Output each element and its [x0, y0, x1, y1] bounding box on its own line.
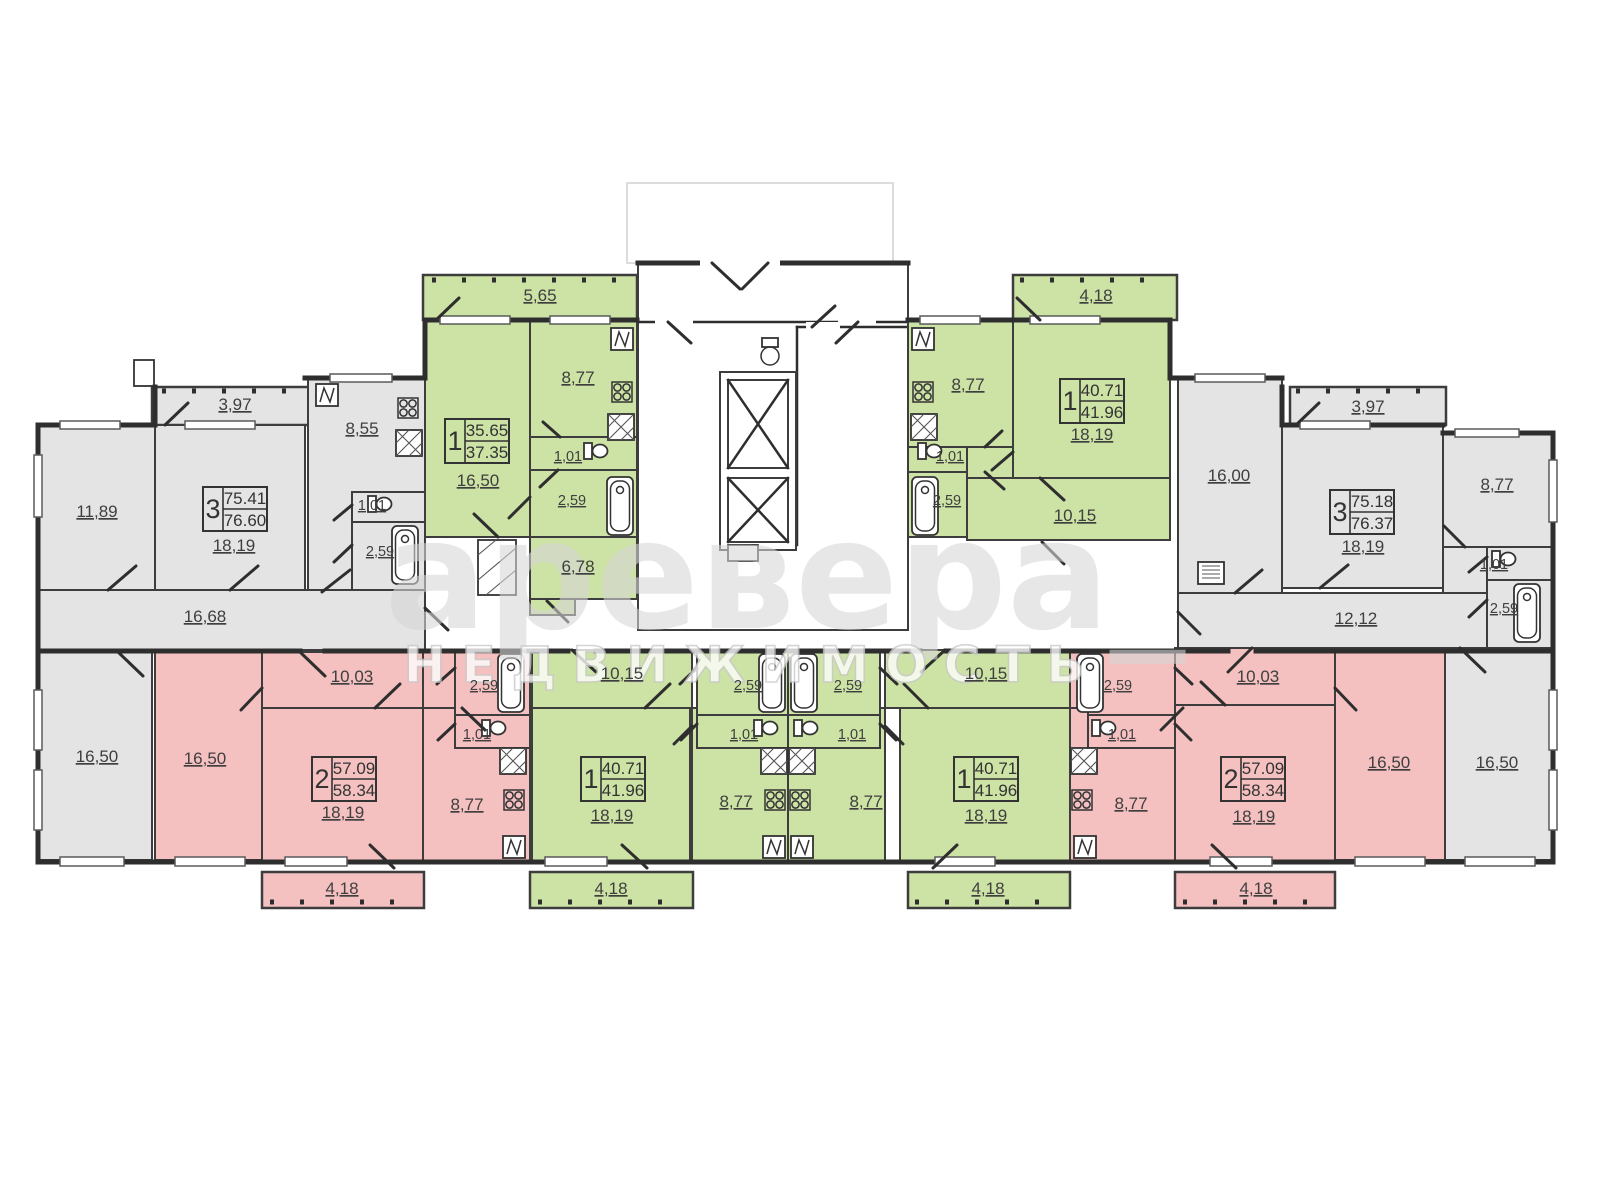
total-area: 41.96	[602, 781, 645, 800]
room-area-label: 1,01	[838, 727, 866, 743]
room-area-label: 4,18	[594, 879, 627, 898]
room-area-label: 8,77	[450, 795, 483, 814]
room-area-label: 5,65	[523, 286, 556, 305]
room-area-label: 4,18	[325, 879, 358, 898]
living-area: 35.65	[466, 421, 509, 440]
room-area-label: 8,77	[849, 792, 882, 811]
rooms-count: 1	[447, 426, 462, 456]
rooms-count: 2	[1223, 764, 1238, 794]
room-area-label: 18,19	[1071, 425, 1114, 444]
total-area: 37.35	[466, 443, 509, 462]
room-area-label: 2,59	[834, 678, 862, 694]
room-area-label: 12,12	[1335, 609, 1378, 628]
bedroom-16-00	[1178, 378, 1282, 593]
room-area-label: 18,19	[591, 806, 634, 825]
sink-icon	[500, 748, 526, 774]
room-area-label: 4,18	[1239, 879, 1272, 898]
room-area-label: 2,59	[470, 678, 498, 694]
hall-12-12	[1178, 593, 1487, 652]
window	[1300, 421, 1370, 429]
room-area-label: 8,55	[345, 419, 378, 438]
room-area-label: 16,00	[1208, 466, 1251, 485]
room-area-label: 16,50	[1368, 753, 1411, 772]
living-area: 75.41	[224, 489, 267, 508]
room-area-label: 8,77	[561, 368, 594, 387]
room-area-label: 2,59	[1104, 678, 1132, 694]
window	[285, 857, 347, 866]
room-area-label: 18,19	[965, 806, 1008, 825]
fridge-icon	[503, 836, 525, 858]
rooms-count: 1	[583, 764, 598, 794]
room-area-label: 10,03	[331, 667, 374, 686]
rooms-count: 3	[1332, 497, 1347, 527]
total-area: 41.96	[1081, 403, 1124, 422]
total-area: 58.34	[333, 781, 376, 800]
window	[1465, 857, 1535, 866]
roof-outline	[627, 183, 893, 263]
window-panel-icon	[134, 360, 154, 386]
window	[60, 857, 124, 866]
room-area-label: 16,68	[184, 607, 227, 626]
room-area-label: 2,59	[734, 678, 762, 694]
fridge-icon	[611, 328, 633, 350]
room-area-label: 2,59	[1490, 601, 1518, 617]
room-area-label: 16,50	[457, 471, 500, 490]
garbage-chute-icon	[762, 338, 778, 347]
room-area-label: 10,15	[1054, 506, 1097, 525]
room-area-label: 1,01	[936, 449, 964, 465]
room-area-label: 8,77	[1114, 794, 1147, 813]
room-area-label: 18,19	[1342, 537, 1385, 556]
room-area-label: 10,15	[601, 664, 644, 683]
window	[1195, 374, 1265, 382]
rooms-count: 2	[314, 764, 329, 794]
window	[175, 857, 245, 866]
hall-16-68	[38, 590, 425, 650]
rooms-count: 1	[1062, 386, 1077, 416]
total-area: 76.37	[1351, 514, 1394, 533]
window	[1549, 770, 1557, 830]
room-area-label: 18,19	[322, 803, 365, 822]
living-area: 57.09	[1242, 759, 1285, 778]
window	[1355, 857, 1425, 866]
window	[60, 421, 120, 429]
window	[550, 316, 610, 324]
room-area-label: 1,01	[1480, 557, 1508, 573]
fridge-icon	[316, 384, 338, 406]
living-area: 40.71	[602, 759, 645, 778]
toilet-icon	[794, 720, 818, 736]
room-area-label: 1,01	[463, 727, 491, 743]
room-area-label: 2,59	[933, 493, 961, 509]
room-area-label: 1,01	[1108, 727, 1136, 743]
room-area-label: 18,19	[1233, 807, 1276, 826]
window	[1210, 857, 1272, 866]
room-area-label: 10,03	[1237, 667, 1280, 686]
room-area-label: 4,18	[1079, 286, 1112, 305]
window	[1549, 460, 1557, 522]
window	[185, 421, 255, 429]
room-area-label: 8,77	[719, 792, 752, 811]
floor-plan-svg: аревера_ НЕДВИЖИМОСТЬ 11,89 3,97 18,19 8…	[0, 0, 1600, 1200]
kitchen-appliance-icon	[1198, 562, 1224, 584]
room-area-label: 16,50	[184, 749, 227, 768]
window	[34, 770, 42, 830]
total-area: 58.34	[1242, 781, 1285, 800]
window	[545, 857, 607, 866]
hall-segment	[967, 447, 1013, 478]
sink-icon	[911, 414, 937, 440]
room-area-label: 8,77	[951, 375, 984, 394]
fridge-icon	[763, 836, 785, 858]
room-area-label: 1,01	[358, 498, 386, 514]
window	[34, 690, 42, 750]
total-area: 41.96	[975, 781, 1018, 800]
rooms-count: 1	[956, 764, 971, 794]
room-area-label: 3,97	[218, 395, 251, 414]
fridge-icon	[791, 836, 813, 858]
room-area-label: 10,15	[965, 664, 1008, 683]
rooms-count: 3	[205, 494, 220, 524]
sink-icon	[761, 748, 787, 774]
fridge-icon	[912, 328, 934, 350]
room-area-label: 8,77	[1480, 475, 1513, 494]
room-area-label: 2,59	[558, 493, 586, 509]
room-area-label: 2,59	[366, 544, 394, 560]
room-area-label: 3,97	[1351, 397, 1384, 416]
window	[34, 455, 42, 517]
sink-icon	[1071, 748, 1097, 774]
room-area-label: 16,50	[76, 747, 119, 766]
living-area: 57.09	[333, 759, 376, 778]
floor-plan-image: аревера_ НЕДВИЖИМОСТЬ 11,89 3,97 18,19 8…	[0, 0, 1600, 1200]
window	[440, 316, 510, 324]
living-area: 75.18	[1351, 492, 1394, 511]
window	[1455, 429, 1519, 437]
room-area-label: 6,78	[561, 557, 594, 576]
fridge-icon	[1074, 836, 1096, 858]
toilet-icon	[584, 443, 608, 459]
room-area-label: 4,18	[971, 879, 1004, 898]
room-area-label: 18,19	[213, 536, 256, 555]
room-area-label: 11,89	[76, 502, 117, 521]
window	[920, 316, 980, 324]
room-area-label: 16,50	[1476, 753, 1519, 772]
sink-icon	[789, 748, 815, 774]
sink-icon	[396, 430, 422, 456]
sink-icon	[608, 414, 634, 440]
room-area-label: 1,01	[554, 449, 582, 465]
room-area-label: 1,01	[730, 727, 758, 743]
window	[330, 374, 392, 382]
living-area: 40.71	[975, 759, 1018, 778]
living-area: 40.71	[1081, 381, 1124, 400]
window	[1549, 690, 1557, 750]
total-area: 76.60	[224, 511, 267, 530]
